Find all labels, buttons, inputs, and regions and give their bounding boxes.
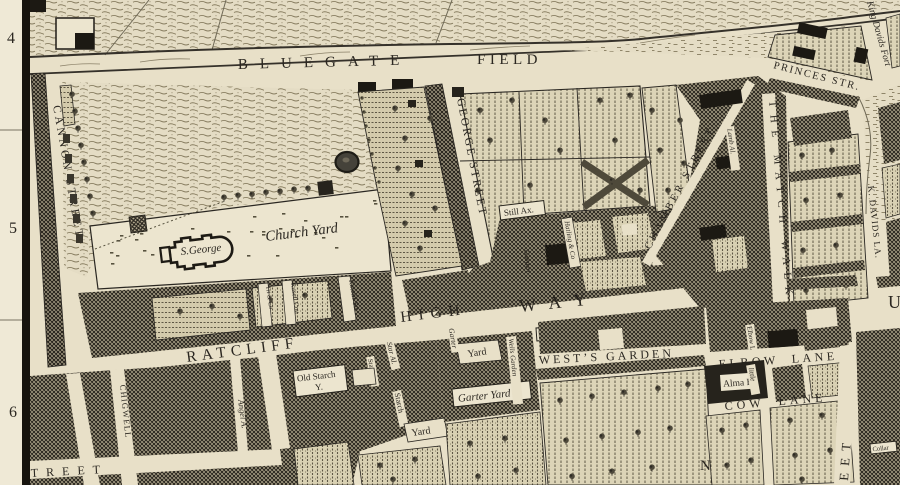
svg-text:N: N bbox=[700, 458, 711, 474]
svg-text:FIELD: FIELD bbox=[477, 52, 542, 68]
svg-text:5: 5 bbox=[9, 220, 17, 237]
svg-text:6: 6 bbox=[9, 404, 17, 421]
svg-text:Y.: Y. bbox=[315, 382, 324, 393]
svg-text:U: U bbox=[888, 292, 900, 312]
svg-text:4: 4 bbox=[7, 30, 15, 47]
svg-text:EET: EET bbox=[836, 435, 854, 481]
